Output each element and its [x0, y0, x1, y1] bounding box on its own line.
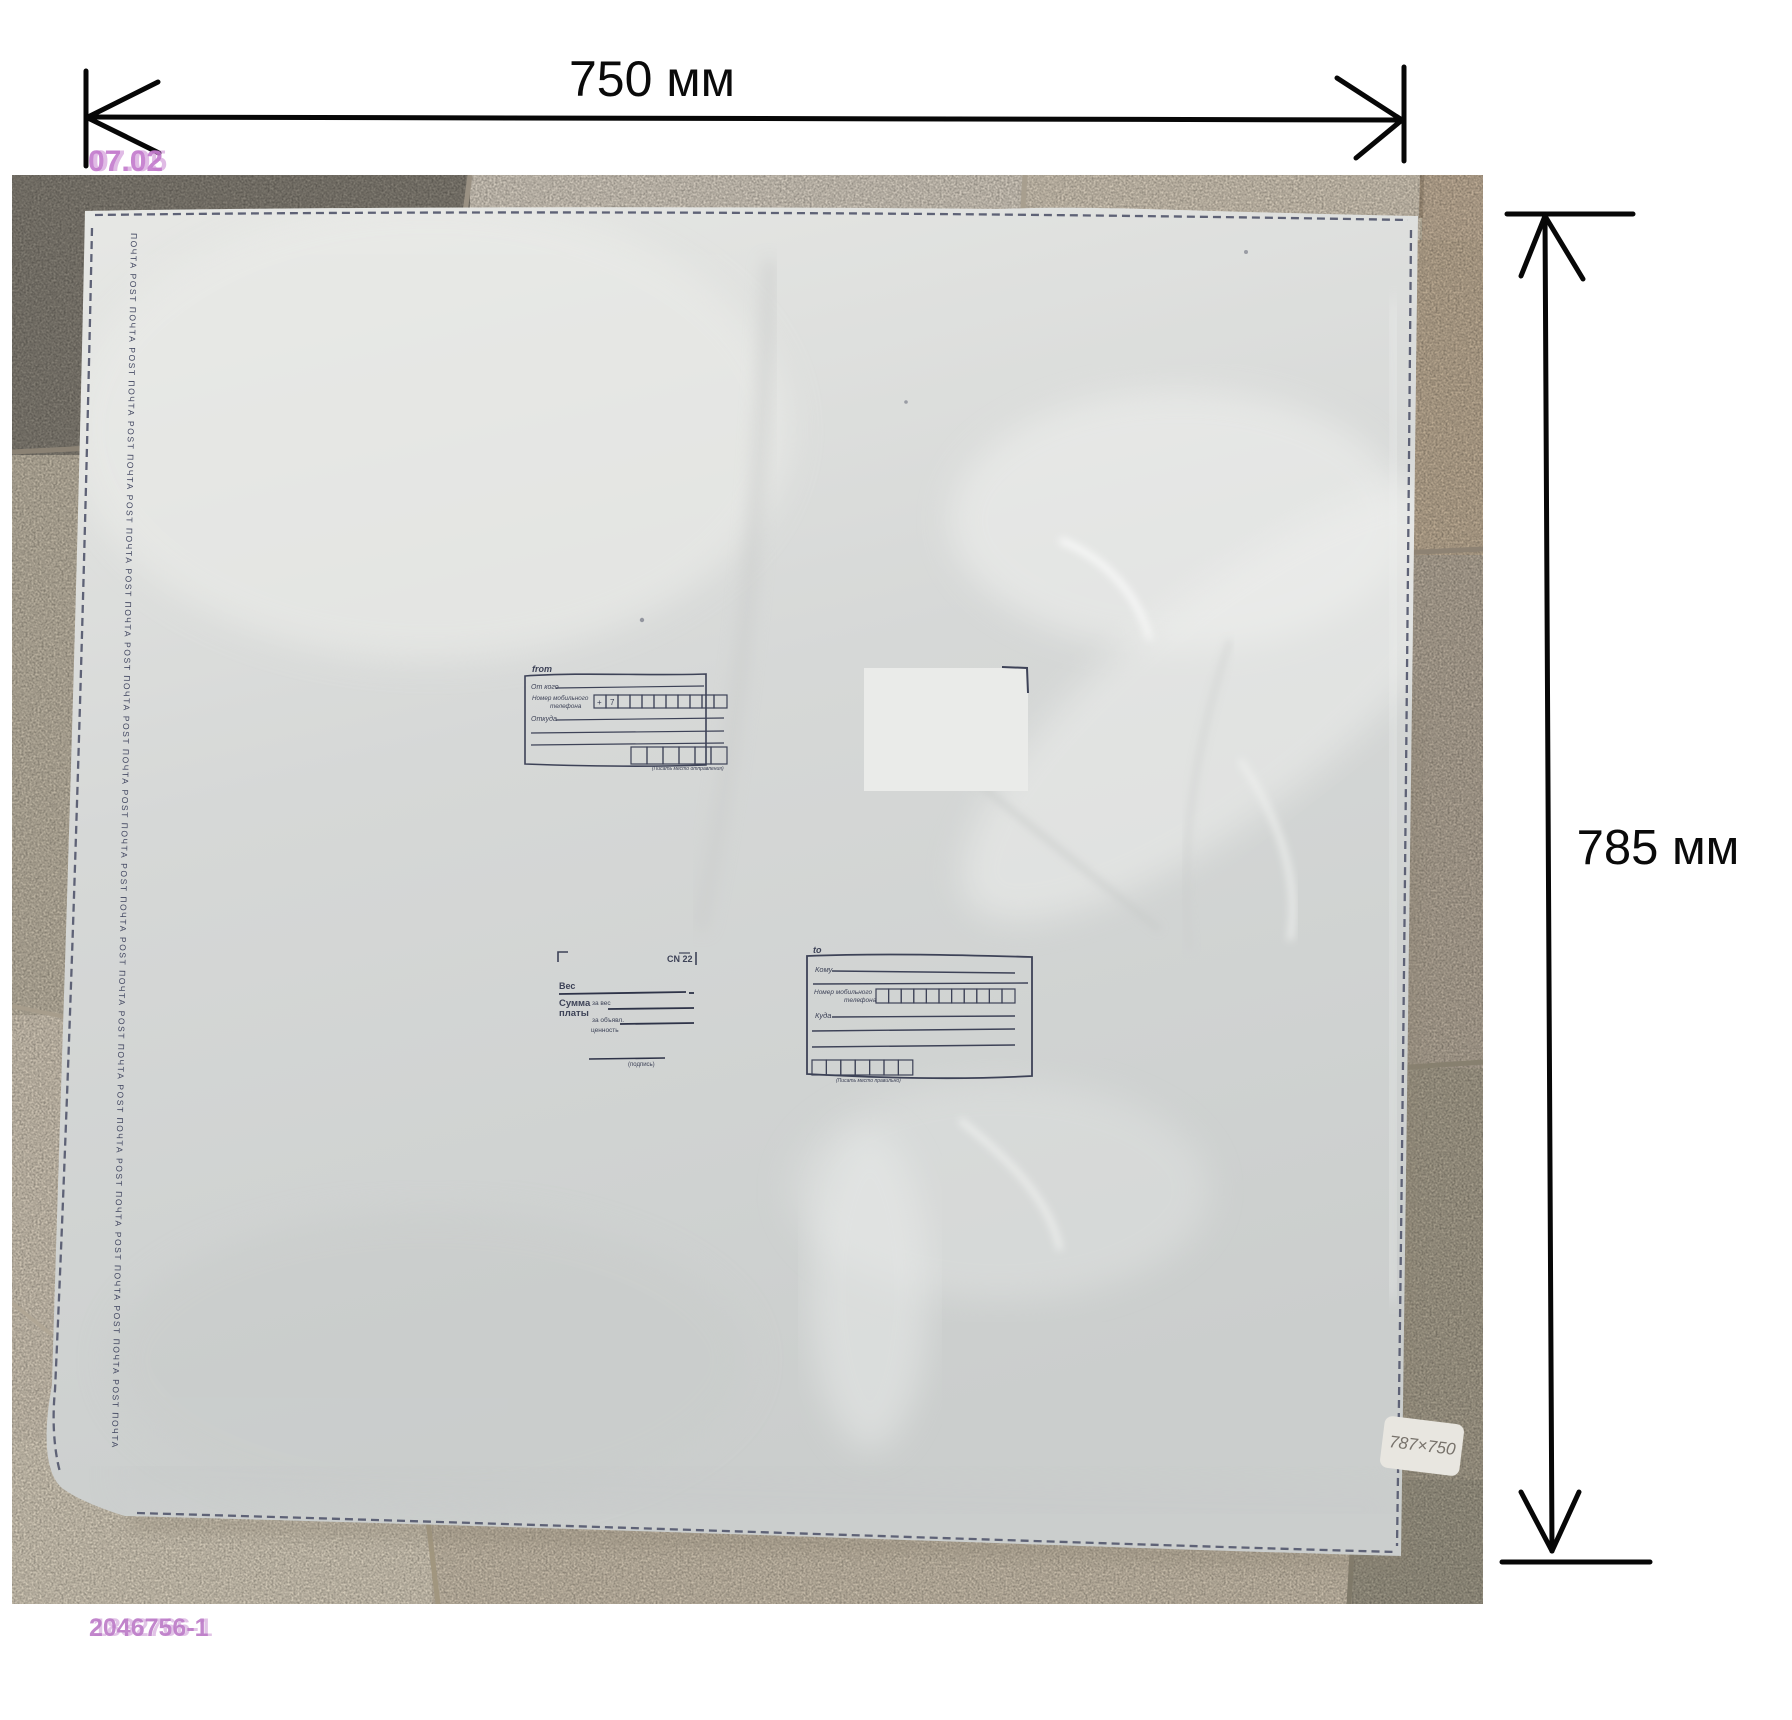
svg-text:7: 7: [610, 698, 615, 707]
svg-text:1832766-1: 1832766-1: [93, 1614, 213, 1642]
svg-text:CN 22: CN 22: [667, 954, 693, 964]
svg-text:От кого: От кого: [531, 684, 559, 691]
svg-text:07.05: 07.05: [92, 145, 167, 178]
svg-text:750 мм: 750 мм: [569, 51, 735, 107]
svg-text:+: +: [597, 698, 602, 707]
svg-text:Куда: Куда: [815, 1011, 831, 1020]
svg-text:(Писать место правильно): (Писать место правильно): [836, 1078, 901, 1084]
svg-text:телефона: телефона: [550, 703, 582, 710]
svg-text:Кому: Кому: [815, 965, 834, 974]
svg-text:from: from: [532, 664, 552, 674]
svg-text:платы: платы: [559, 1008, 589, 1019]
svg-text:Номер мобильного: Номер мобильного: [814, 988, 873, 996]
svg-text:785 мм: 785 мм: [1577, 821, 1740, 875]
svg-text:Откуда: Откуда: [531, 715, 557, 723]
svg-text:Номер мобильного: Номер мобильного: [532, 694, 589, 702]
svg-text:(подпись): (подпись): [628, 1062, 655, 1068]
svg-text:Вес: Вес: [559, 981, 575, 991]
svg-text:(Писать место отправления): (Писать место отправления): [652, 766, 724, 772]
svg-text:за вес: за вес: [592, 1000, 611, 1007]
svg-text:телефона: телефона: [844, 997, 877, 1004]
svg-text:за объявл.: за объявл.: [592, 1016, 624, 1024]
svg-text:to: to: [813, 945, 822, 955]
svg-text:ценность: ценность: [591, 1027, 619, 1034]
